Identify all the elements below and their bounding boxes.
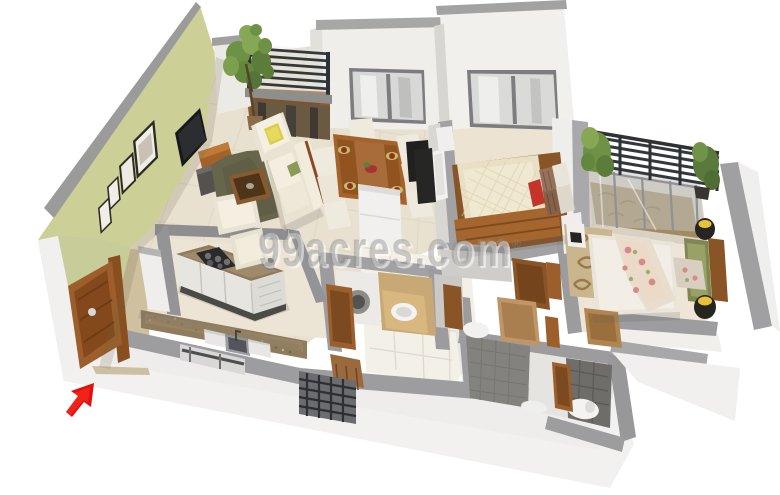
svg-text:99acres.com: 99acres.com	[258, 220, 511, 277]
svg-text:®: ®	[512, 237, 521, 251]
